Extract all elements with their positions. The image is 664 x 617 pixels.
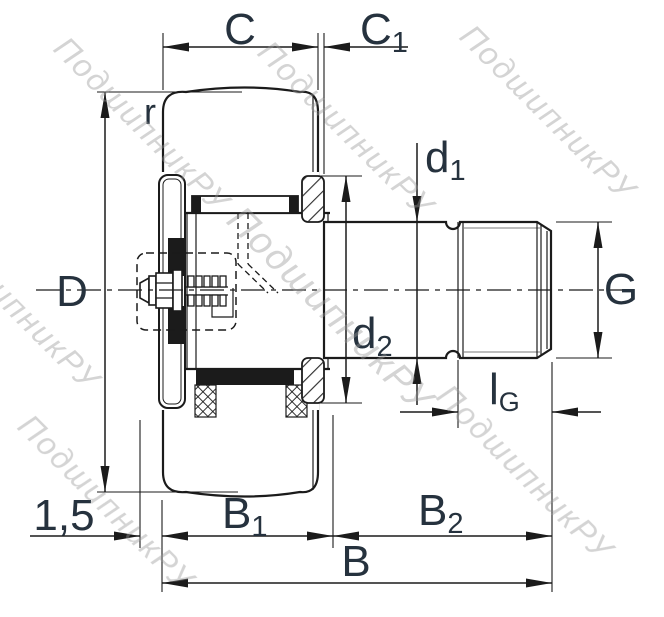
seal-left xyxy=(195,385,216,417)
label-C: C xyxy=(224,5,256,54)
bearing-technical-drawing: C C1 r D d1 d2 G lG 1,5 B1 B2 B Подшипни… xyxy=(0,0,664,617)
flange-washer-bottom xyxy=(302,358,324,403)
flange-washer-top xyxy=(302,176,324,222)
label-B: B xyxy=(341,537,370,586)
label-D: D xyxy=(56,267,88,316)
label-G: G xyxy=(604,265,638,314)
needle-roller-strip-bottom xyxy=(196,369,294,385)
